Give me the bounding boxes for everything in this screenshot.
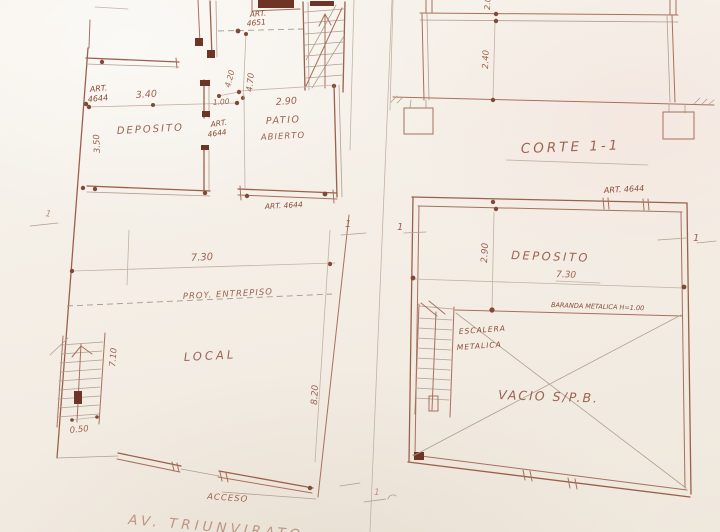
- labels: ART. 4651 ART. 4644 3.40 3.50 DEPOSITO 1…: [44, 0, 699, 532]
- label-art4651-line2: 4651: [246, 17, 266, 28]
- label-street: AV. TRIUNVIRATO: [127, 512, 305, 532]
- label-deposito-left: DEPOSITO: [117, 122, 185, 137]
- label-escalera-line1: ESCALERA: [459, 324, 507, 336]
- dim-patio-height: 4.70: [245, 72, 257, 92]
- label-local: LOCAL: [183, 347, 236, 364]
- dim-deposito-height: 3.50: [92, 134, 103, 153]
- section-title: CORTE 1-1: [521, 138, 621, 157]
- cut-mark-right-plan-left: 1: [397, 222, 403, 233]
- dim-patio-width: 2.90: [275, 96, 297, 108]
- dim-deposito-width: 3.40: [135, 89, 157, 101]
- dim-local-height: 8.20: [310, 384, 321, 405]
- label-patio-line1: PATIO: [266, 114, 301, 127]
- label-art4644-mid-line2: 4644: [207, 127, 227, 139]
- cut-mark-left-plan-right: 1: [345, 219, 351, 230]
- cut-mark-bottom: 1: [374, 488, 380, 498]
- label-art4644-sill: ART. 4644: [264, 200, 304, 211]
- dim-stair-height: 7.10: [108, 348, 120, 368]
- dim-deposito-r-height: 2.90: [480, 242, 491, 263]
- label-art4644-right: ART. 4644: [603, 184, 645, 195]
- blueprint-scan: ART. 4651 ART. 4644 3.40 3.50 DEPOSITO 1…: [0, 0, 720, 532]
- label-acceso: ACCESO: [206, 492, 249, 505]
- dim-planta-width: 7.30: [191, 252, 214, 264]
- label-vacio: VACIO S/P.B.: [498, 387, 599, 406]
- dim-door: 1.00: [213, 97, 231, 107]
- dim-section-height: 2.40: [481, 50, 492, 69]
- label-patio-line2: ABIERTO: [260, 131, 306, 143]
- cut-mark-left-plan-left: 1: [44, 209, 51, 220]
- label-escalera-line2: METALICA: [457, 340, 503, 352]
- dim-patio-note: 4.20: [223, 69, 236, 89]
- label-deposito-right: DEPOSITO: [511, 248, 590, 265]
- label-art4644-left-line1: ART.: [88, 84, 107, 95]
- dim-stair-width: 0.50: [69, 424, 89, 436]
- right-plan: [364, 197, 716, 502]
- label-proy-entrepiso: PROY. ENTREPISO: [183, 287, 274, 302]
- cut-mark-right-plan-right: 1: [693, 233, 699, 244]
- label-baranda: BARANDA METALICA H=1.00: [551, 301, 644, 312]
- label-art4644-left-line2: 4644: [87, 93, 108, 104]
- floorplan-drawing: ART. 4651 ART. 4644 3.40 3.50 DEPOSITO 1…: [0, 0, 720, 532]
- dim-deposito-r-width: 7.30: [556, 270, 577, 281]
- dim-section-top-partial: 2.0: [483, 0, 492, 10]
